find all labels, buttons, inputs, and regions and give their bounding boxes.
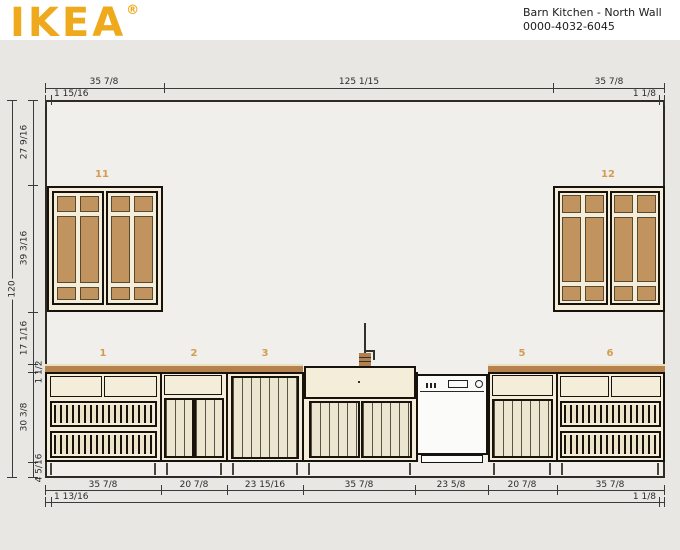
base-cabinet-2-label: 2	[191, 348, 198, 359]
dim-bottom-sub-right: 1 1/8	[633, 493, 656, 502]
cabinet-leg	[308, 463, 310, 475]
cabinet-leg	[154, 463, 156, 475]
cabinet-door	[309, 401, 360, 458]
glass-pane	[134, 216, 153, 283]
glass-door	[610, 191, 660, 305]
dishwasher	[416, 374, 488, 455]
drawer-front	[492, 375, 553, 396]
dishwasher-knob-icon	[475, 380, 483, 388]
glass-pane	[585, 286, 604, 301]
dim-tick	[45, 95, 46, 105]
dim-tick	[51, 497, 52, 507]
cabinet-door	[361, 401, 412, 458]
dim-left-4: 1 1/2	[36, 360, 45, 383]
dim-bottom-7: 35 7/8	[596, 481, 625, 490]
glass-pane	[111, 196, 130, 212]
glass-pane	[562, 217, 581, 282]
drawer-front	[104, 376, 157, 397]
glass-pane	[134, 196, 153, 212]
cabinet-leg	[549, 463, 551, 475]
glass-pane	[80, 216, 99, 283]
dim-tick	[28, 100, 38, 101]
dim-tick	[45, 83, 46, 93]
base-cabinet-1-label: 1	[100, 348, 107, 359]
sink-mark	[358, 381, 360, 383]
slatted-drawer	[50, 401, 157, 427]
faucet-spout	[373, 350, 375, 360]
dim-tick	[303, 485, 304, 495]
glass-pane	[637, 195, 656, 213]
glass-pane	[637, 286, 656, 301]
glass-pane	[111, 216, 130, 283]
glass-pane	[614, 195, 633, 213]
dim-tick	[415, 485, 416, 495]
dim-tick	[7, 477, 17, 478]
dim-top-2: 125 1/15	[339, 78, 379, 87]
dim-tick	[664, 497, 665, 507]
drawer-front	[50, 376, 102, 397]
dim-top-3: 35 7/8	[595, 78, 624, 87]
dim-left-overall: 120	[9, 278, 18, 299]
cabinet-leg	[657, 463, 659, 475]
dim-tick	[28, 312, 38, 313]
dim-top-1: 35 7/8	[90, 78, 119, 87]
faucet-detail	[359, 357, 371, 358]
dim-tick	[51, 95, 52, 105]
cabinet-leg	[561, 463, 563, 475]
dim-left-6: 4 5/16	[36, 454, 45, 483]
dim-tick	[664, 83, 665, 93]
wall-cabinet-11	[47, 186, 163, 312]
wall-cabinet-11-label: 11	[95, 169, 109, 180]
dishwasher-buttons-icon	[426, 383, 436, 388]
dim-tick	[664, 95, 665, 105]
dim-tick	[659, 497, 660, 507]
project-title: Barn Kitchen - North Wall	[523, 6, 662, 20]
cabinet-leg	[409, 463, 411, 475]
dim-tick	[164, 83, 165, 93]
dishwasher-kick-panel	[421, 455, 483, 463]
glass-door	[52, 191, 104, 305]
dishwasher-display-icon	[448, 380, 468, 388]
dim-top-sub-right: 1 1/8	[633, 90, 656, 99]
glass-pane	[614, 217, 633, 282]
dim-tick	[161, 485, 162, 495]
dim-left-3: 17 1/16	[21, 321, 30, 356]
registered-mark: ®	[126, 3, 139, 18]
cabinet-leg	[166, 463, 168, 475]
dim-bottom-5: 23 5/8	[437, 481, 466, 490]
drawer-front	[611, 376, 661, 397]
dim-left-1: 27 9/16	[21, 125, 30, 160]
glass-pane	[562, 286, 581, 301]
dim-top-sub-left: 1 15/16	[54, 90, 89, 99]
base-cabinet-6-label: 6	[607, 348, 614, 359]
cabinet-leg	[220, 463, 222, 475]
dim-tick	[553, 83, 554, 93]
dim-left-2: 39 3/16	[21, 231, 30, 266]
wall-cabinet-12-label: 12	[601, 169, 615, 180]
slatted-drawer	[560, 431, 661, 458]
farmhouse-sink-apron	[304, 366, 416, 399]
dim-tick	[45, 485, 46, 495]
dim-tick	[45, 497, 46, 507]
glass-pane	[57, 287, 76, 300]
cabinet-leg	[232, 463, 234, 475]
dim-tick	[7, 100, 17, 101]
dim-tick	[659, 95, 660, 105]
glass-pane	[111, 287, 130, 300]
drawer-front	[164, 375, 222, 395]
slatted-drawer	[50, 431, 157, 458]
faucet-handle	[359, 353, 371, 366]
base-cabinet-3-label: 3	[262, 348, 269, 359]
cabinet-door	[164, 398, 194, 458]
title-block: Barn Kitchen - North Wall 0000-4032-6045	[523, 6, 662, 34]
cabinet-door	[492, 399, 553, 458]
glass-pane	[637, 217, 656, 282]
glass-pane	[80, 287, 99, 300]
glass-door	[558, 191, 608, 305]
dim-tick	[488, 485, 489, 495]
glass-pane	[57, 216, 76, 283]
dim-tick	[557, 485, 558, 495]
bottom-sub-dimension-line	[45, 502, 665, 503]
glass-pane	[80, 196, 99, 212]
faucet-detail	[359, 361, 371, 362]
dim-bottom-6: 20 7/8	[508, 481, 537, 490]
planner-page: IKEA® Barn Kitchen - North Wall 0000-403…	[0, 0, 680, 550]
cabinet-leg	[493, 463, 495, 475]
bottom-dimension-line	[45, 490, 665, 491]
wall-cabinet-12	[553, 186, 665, 312]
left-dimension-line	[33, 100, 34, 478]
dishwasher-control-panel	[420, 377, 484, 392]
dim-tick	[664, 485, 665, 495]
glass-pane	[614, 286, 633, 301]
glass-pane	[57, 196, 76, 212]
glass-pane	[585, 195, 604, 213]
dim-bottom-sub-left: 1 13/16	[54, 493, 89, 502]
glass-pane	[562, 195, 581, 213]
cabinet-leg	[50, 463, 52, 475]
dim-left-5: 30 3/8	[21, 403, 30, 432]
dim-bottom-3: 23 15/16	[245, 481, 285, 490]
dim-bottom-1: 35 7/8	[89, 481, 118, 490]
dim-tick	[28, 185, 38, 186]
dim-bottom-4: 35 7/8	[345, 481, 374, 490]
cabinet-leg	[296, 463, 298, 475]
dim-bottom-2: 20 7/8	[180, 481, 209, 490]
dim-tick	[227, 485, 228, 495]
top-dimension-line	[45, 88, 665, 89]
tall-cabinet-door	[231, 376, 299, 459]
drawer-front	[560, 376, 609, 397]
slatted-drawer	[560, 401, 661, 427]
base-cabinet-5-label: 5	[519, 348, 526, 359]
glass-door	[106, 191, 158, 305]
cabinet-door	[194, 398, 224, 458]
project-id: 0000-4032-6045	[523, 20, 662, 34]
glass-pane	[134, 287, 153, 300]
glass-pane	[585, 217, 604, 282]
